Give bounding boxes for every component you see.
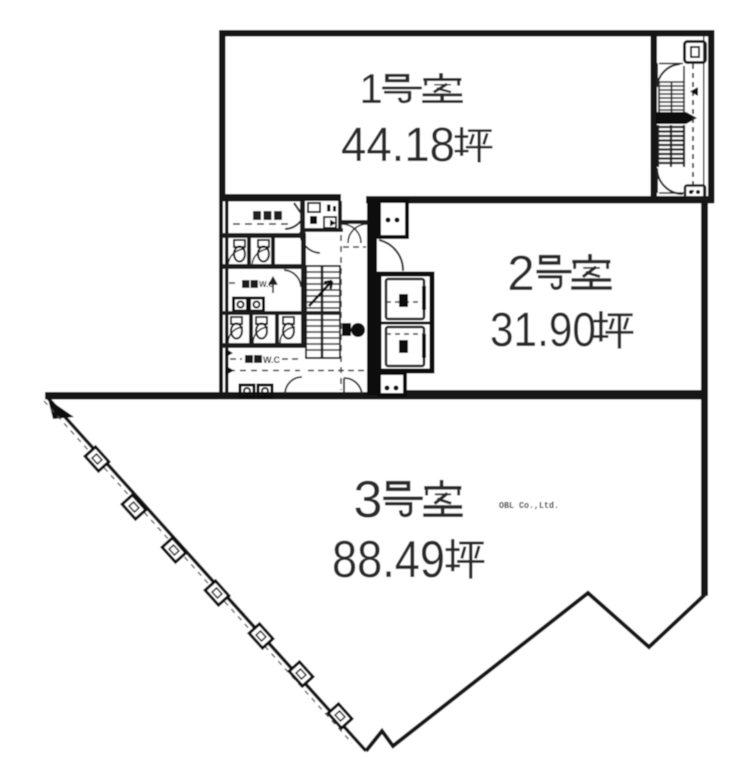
svg-text:31.90: 31.90	[490, 304, 596, 357]
svg-text:W.C: W.C	[263, 355, 280, 365]
svg-text:1: 1	[359, 65, 382, 112]
svg-text:88.49: 88.49	[332, 531, 445, 589]
svg-text:3: 3	[354, 471, 383, 529]
svg-text:OBL Co.,Ltd.: OBL Co.,Ltd.	[499, 500, 559, 511]
svg-text:44.18: 44.18	[341, 119, 455, 172]
svg-text:2: 2	[507, 247, 534, 301]
